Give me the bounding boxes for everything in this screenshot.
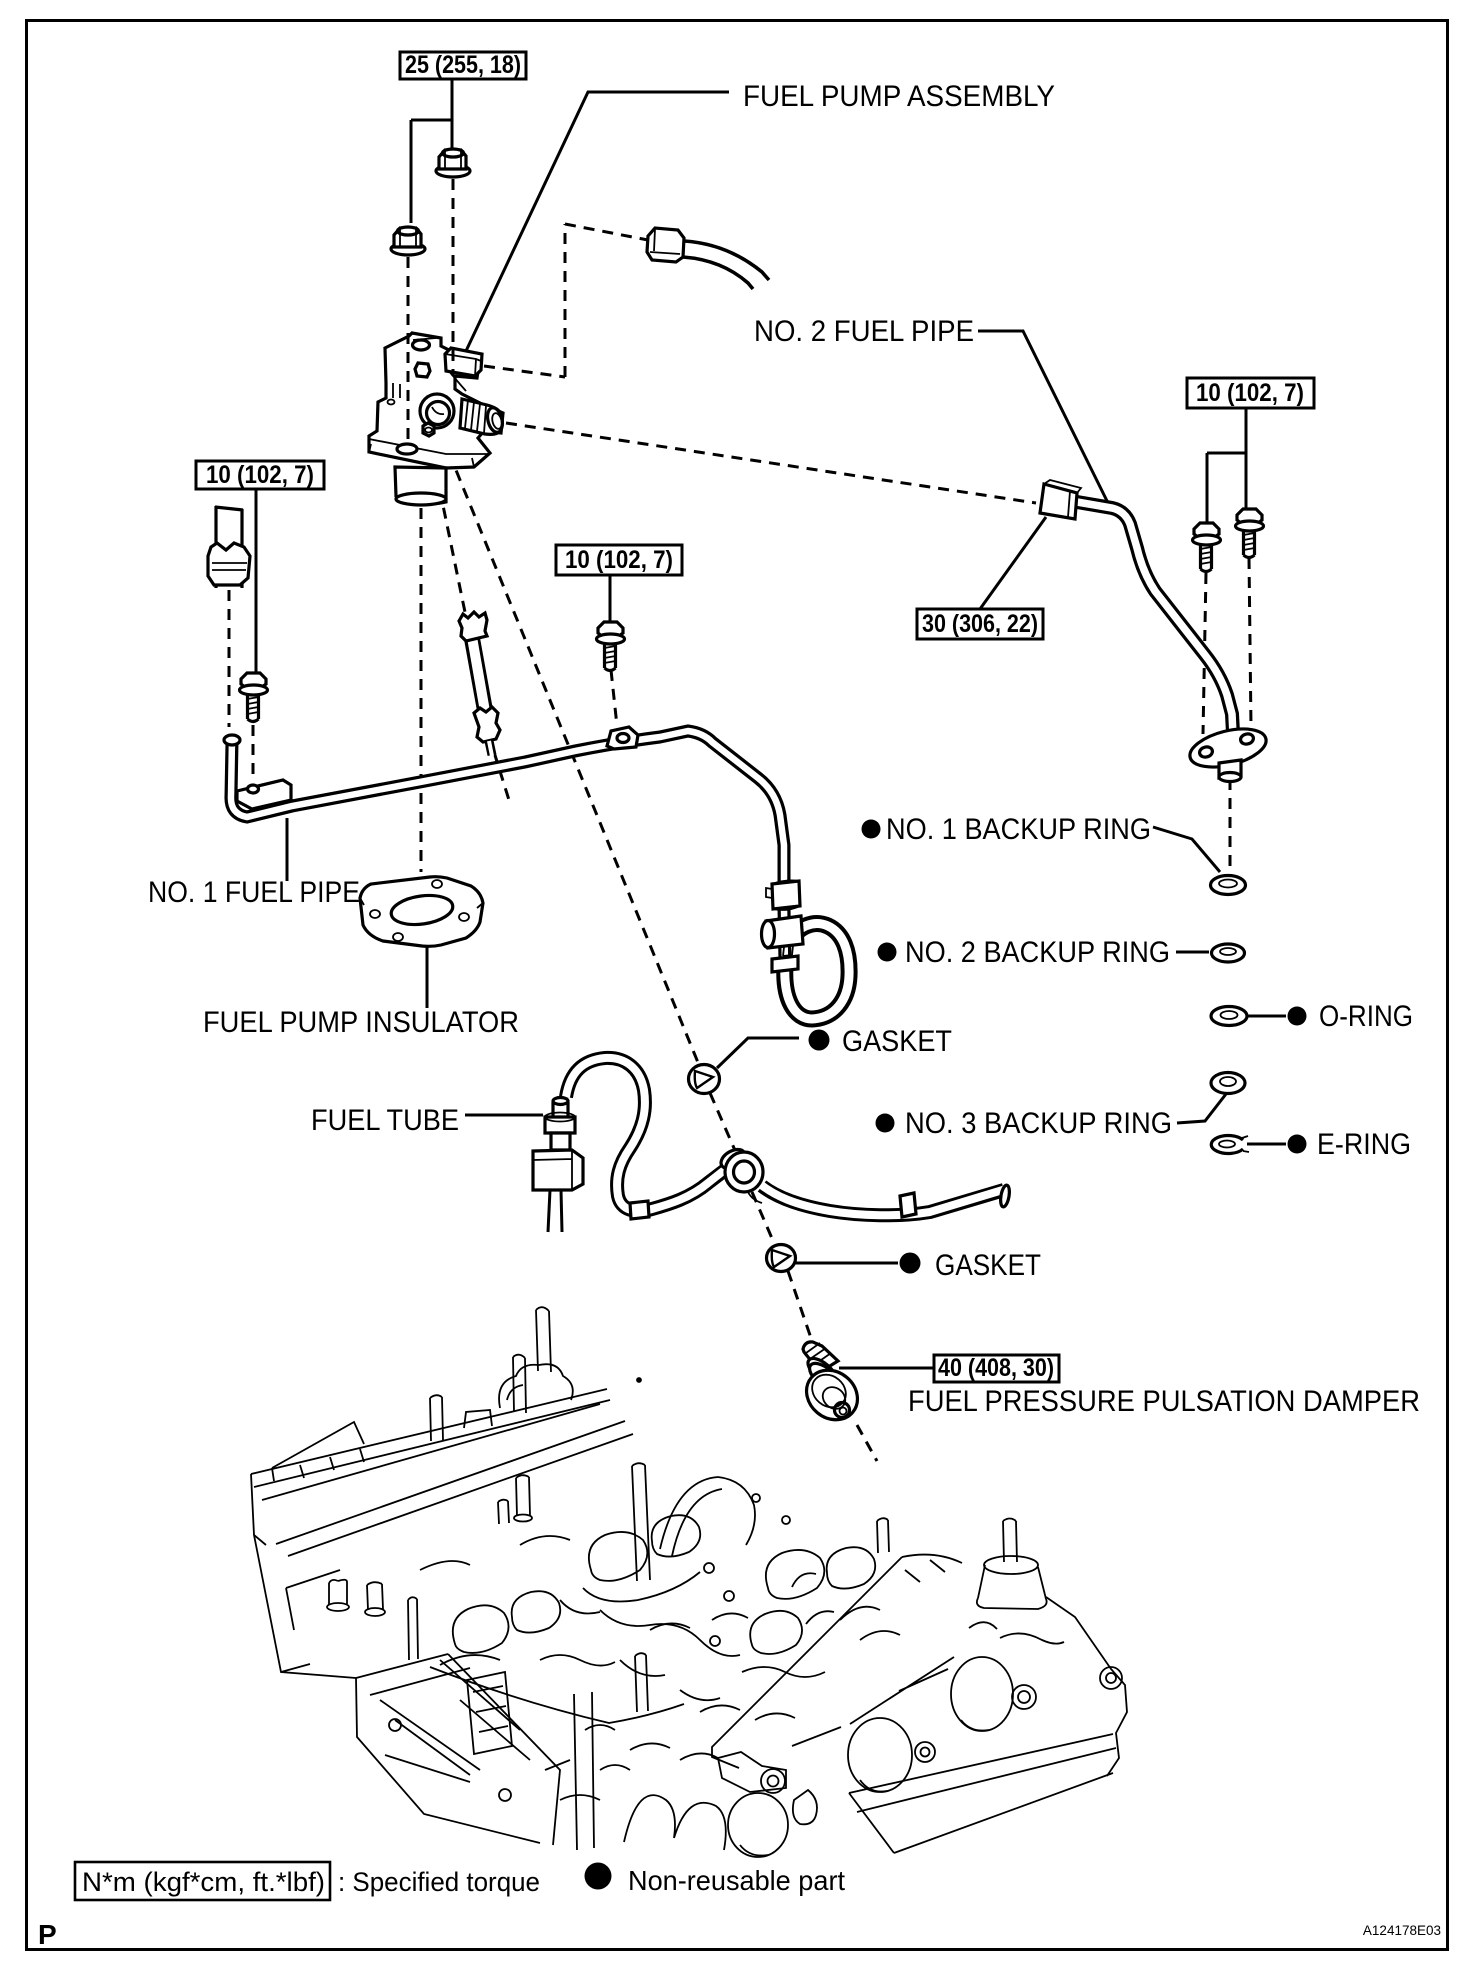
- svg-text:P: P: [38, 1919, 57, 1950]
- svg-text:O-RING: O-RING: [1319, 1000, 1413, 1033]
- svg-text:10 (102, 7): 10 (102, 7): [565, 546, 673, 574]
- svg-text:: Specified torque: : Specified torque: [338, 1867, 540, 1897]
- svg-text:30 (306, 22): 30 (306, 22): [922, 610, 1038, 638]
- svg-text:FUEL TUBE: FUEL TUBE: [311, 1104, 459, 1137]
- svg-text:GASKET: GASKET: [842, 1025, 952, 1058]
- svg-text:40 (408, 30): 40 (408, 30): [938, 1354, 1054, 1382]
- svg-text:NO. 1 BACKUP RING: NO. 1 BACKUP RING: [886, 813, 1151, 846]
- svg-text:10 (102, 7): 10 (102, 7): [206, 461, 314, 489]
- svg-text:FUEL PUMP INSULATOR: FUEL PUMP INSULATOR: [203, 1006, 519, 1039]
- svg-text:NO. 1 FUEL PIPE: NO. 1 FUEL PIPE: [148, 876, 360, 909]
- svg-text:FUEL PUMP ASSEMBLY: FUEL PUMP ASSEMBLY: [743, 80, 1055, 113]
- svg-text:25 (255, 18): 25 (255, 18): [405, 51, 521, 79]
- svg-text:NO. 2 BACKUP RING: NO. 2 BACKUP RING: [905, 936, 1170, 969]
- svg-text:NO. 2 FUEL PIPE: NO. 2 FUEL PIPE: [754, 315, 974, 348]
- svg-text:E-RING: E-RING: [1317, 1128, 1411, 1161]
- svg-text:A124178E03: A124178E03: [1363, 1923, 1441, 1938]
- svg-text:N*m (kgf*cm, ft.*lbf): N*m (kgf*cm, ft.*lbf): [82, 1867, 325, 1897]
- svg-text:10 (102, 7): 10 (102, 7): [1196, 379, 1304, 407]
- svg-text:NO. 3 BACKUP RING: NO. 3 BACKUP RING: [905, 1107, 1172, 1140]
- svg-text:GASKET: GASKET: [935, 1249, 1041, 1282]
- svg-text:FUEL PRESSURE PULSATION DAMPER: FUEL PRESSURE PULSATION DAMPER: [908, 1385, 1420, 1418]
- svg-text:Non-reusable part: Non-reusable part: [628, 1865, 845, 1896]
